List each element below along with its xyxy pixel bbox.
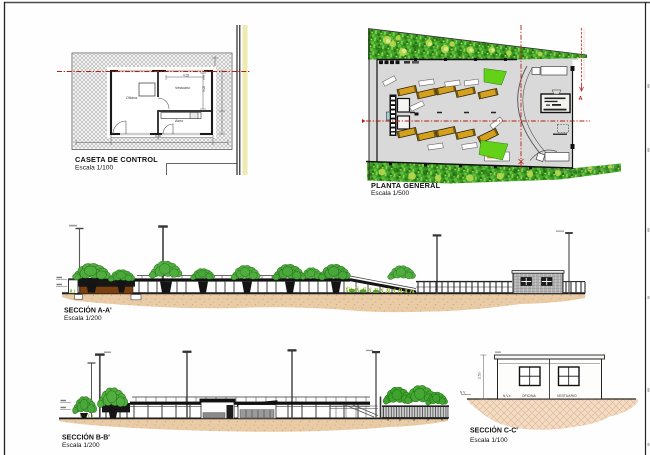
- svg-text:Vestuario: Vestuario: [175, 86, 190, 90]
- svg-text:CASETA DE CONTROL: CASETA DE CONTROL: [75, 155, 158, 164]
- svg-text:4.35: 4.35: [183, 74, 189, 78]
- svg-text:Escala 1/100: Escala 1/100: [470, 437, 508, 444]
- svg-text:2.50: 2.50: [478, 372, 482, 379]
- svg-text:5.30: 5.30: [155, 134, 161, 138]
- svg-text:VESTUARIO: VESTUARIO: [557, 394, 577, 398]
- svg-text:Escala 1/100: Escala 1/100: [75, 165, 113, 172]
- svg-text:N.V.: N.V.: [460, 391, 466, 395]
- svg-text:N.V.±: N.V.±: [503, 394, 511, 398]
- svg-text:SECCIÓN B-B': SECCIÓN B-B': [62, 433, 110, 442]
- svg-text:PLANTA GENERAL: PLANTA GENERAL: [371, 181, 441, 190]
- svg-text:SECCIÓN A-A': SECCIÓN A-A': [64, 306, 112, 315]
- svg-text:OFICINA: OFICINA: [522, 394, 536, 398]
- svg-text:Oficina: Oficina: [126, 96, 137, 100]
- svg-text:Escala 1/200: Escala 1/200: [64, 315, 102, 322]
- svg-text:SECCIÓN C-C': SECCIÓN C-C': [470, 426, 518, 435]
- svg-text:Escala 1/200: Escala 1/200: [62, 442, 100, 449]
- svg-text:Escala 1/500: Escala 1/500: [371, 190, 409, 197]
- svg-text:3.00: 3.00: [202, 86, 206, 92]
- svg-text:Aseo: Aseo: [175, 119, 183, 123]
- svg-text:A: A: [579, 96, 583, 102]
